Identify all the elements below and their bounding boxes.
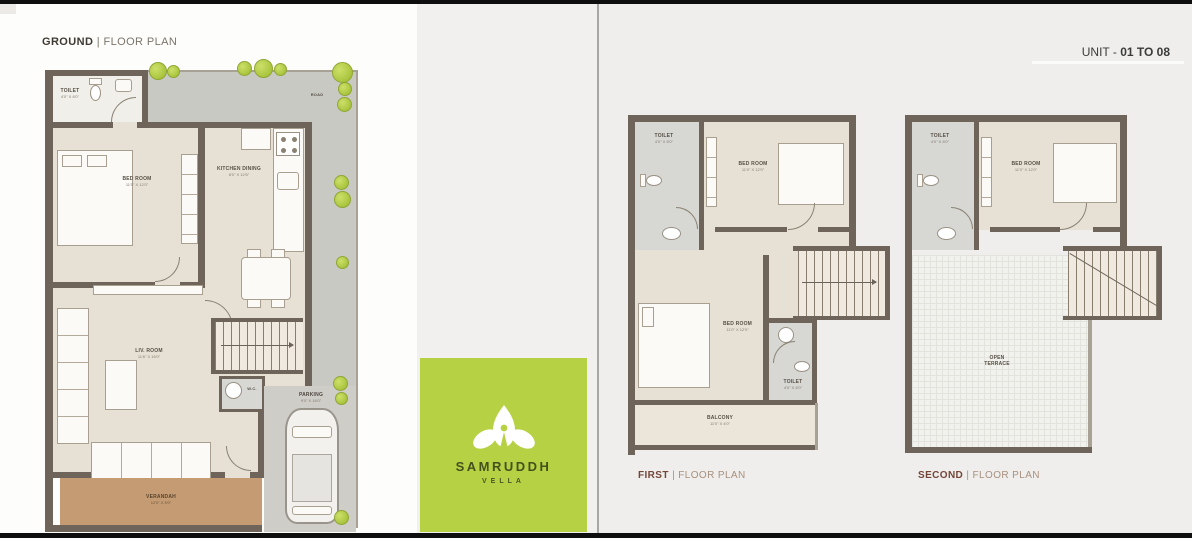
living-room-label-dim: 11'6" X 16'0": [117, 354, 181, 359]
wc-label: W.C.: [241, 386, 263, 391]
coffee-table: [105, 360, 137, 410]
bed: [778, 143, 844, 205]
dining-chair: [271, 299, 285, 308]
brand-box: SAMRUDDH VELLA: [420, 358, 587, 532]
second-plan-title-rest: | FLOOR PLAN: [966, 470, 1040, 481]
stove: [276, 132, 300, 156]
ground-plan-title-bold: GROUND: [42, 36, 93, 48]
stairs-arrow: [221, 345, 293, 346]
first-plan-title: FIRST | FLOOR PLAN: [638, 470, 746, 481]
stairs-arrow: [802, 282, 876, 283]
wall: [635, 445, 817, 450]
wall: [812, 320, 817, 405]
kitchen-sink: [277, 172, 299, 190]
pillow: [62, 155, 82, 167]
wall: [699, 122, 704, 250]
wall: [1120, 115, 1127, 255]
tree: [334, 510, 349, 525]
wall: [45, 70, 148, 76]
brand-name: SAMRUDDH: [456, 459, 552, 474]
sofa: [57, 308, 89, 444]
road-strip: [148, 70, 312, 128]
wall: [715, 227, 787, 232]
pillow: [642, 307, 654, 327]
wall: [53, 122, 113, 128]
wall: [912, 447, 1092, 453]
bedroom-label: BED ROOM 11'0" X 12'0": [724, 161, 782, 172]
ground-plan-title: GROUND | FLOOR PLAN: [42, 36, 177, 48]
wall: [53, 525, 262, 532]
tv-unit: [93, 285, 203, 295]
toilet-label: TOILET 4'0" X 6'0": [638, 133, 690, 144]
toilet-commode: [794, 361, 810, 372]
top-left-notch: [0, 4, 16, 14]
toilet-label-dim: 4'0" X 6'0": [774, 385, 812, 390]
wall: [818, 227, 856, 232]
toilet-commode: [90, 85, 101, 101]
terrace-label-line2: TERRACE: [965, 361, 1029, 367]
kitchen-label-dim: 8'0" X 12'6": [207, 172, 271, 177]
sofa: [91, 442, 211, 480]
tree: [167, 65, 180, 78]
car-windshield: [292, 426, 332, 438]
toilet-label: TOILET 4'0" X 6'0": [774, 379, 812, 390]
road-label-text: ROAD: [297, 92, 337, 97]
tree: [336, 256, 349, 269]
toilet-cistern: [89, 78, 102, 85]
parking-label: PARKING 9'0" X 16'0": [283, 392, 339, 403]
wall: [974, 122, 979, 250]
unit-label-range: 01 TO 08: [1120, 45, 1170, 59]
wardrobe: [981, 137, 992, 207]
plot-boundary-right: [356, 70, 358, 528]
road-label: ROAD: [297, 92, 337, 97]
toilet-label: TOILET 4'0" X 6'0": [53, 88, 87, 99]
tree: [334, 175, 349, 190]
bed: [1053, 143, 1117, 203]
unit-underline: [1032, 61, 1184, 64]
pillow: [87, 155, 107, 167]
brochure-page: GROUND | FLOOR PLAN UNIT - 01 TO 08 ROAD…: [0, 0, 1192, 538]
first-floor-plan: TOILET 4'0" X 6'0" BED ROOM 11'0" X 12'0…: [628, 115, 890, 455]
fridge: [241, 128, 271, 150]
tree: [254, 59, 273, 78]
bedroom-label-dim: 11'0" X 12'0": [105, 182, 169, 187]
wc-label-text: W.C.: [241, 386, 263, 391]
tree: [274, 63, 287, 76]
bottom-black-bar: [0, 533, 1192, 538]
wardrobe: [706, 137, 717, 207]
second-floor-plan: OPEN TERRACE TOILET 4'0" X 6'0" BED ROOM…: [905, 115, 1165, 460]
panel-divider: [597, 4, 599, 533]
wall: [305, 122, 312, 388]
tree: [334, 191, 351, 208]
wall: [45, 70, 53, 532]
bedroom-label: BED ROOM 11'0" X 12'0": [105, 176, 169, 187]
toilet-label-dim: 4'0" X 6'0": [914, 139, 966, 144]
bedroom-label: BED ROOM 11'0" X 12'0": [710, 321, 765, 332]
bedroom-label-dim: 11'0" X 12'0": [710, 327, 765, 332]
tree: [149, 62, 167, 80]
bedroom-label: BED ROOM 11'0" X 12'0": [997, 161, 1055, 172]
bedroom-label-dim: 11'0" X 12'0": [997, 167, 1055, 172]
dining-chair: [247, 299, 261, 308]
outside-patch: [817, 320, 856, 403]
open-terrace-floor: [912, 255, 1088, 451]
wall: [905, 115, 1127, 122]
toilet-label-dim: 4'0" X 6'0": [53, 94, 87, 99]
wall: [905, 115, 912, 453]
balcony-rail: [815, 403, 818, 450]
terrace-label: OPEN TERRACE: [965, 355, 1029, 368]
balcony-label-dim: 11'0" X 4'0": [690, 421, 750, 426]
bedroom-label-dim: 11'0" X 12'0": [724, 167, 782, 172]
kitchen-label: KITCHEN DINING 8'0" X 12'6": [207, 166, 271, 177]
second-plan-title-bold: SECOND: [918, 470, 963, 481]
car: [285, 408, 339, 524]
wall: [628, 115, 856, 122]
verandah-label-dim: 12'0" X 5'0": [131, 500, 191, 505]
tree: [333, 376, 348, 391]
top-black-bar: [0, 0, 1192, 4]
brand-tagline: VELLA: [482, 478, 525, 485]
tree: [335, 392, 348, 405]
wall: [142, 70, 148, 128]
first-plan-title-rest: | FLOOR PLAN: [672, 470, 746, 481]
wall: [1063, 316, 1162, 320]
wall: [885, 246, 890, 320]
ground-plan-title-rest: | FLOOR PLAN: [97, 36, 177, 48]
wc-basin: [225, 382, 242, 399]
ground-floor-plan: ROAD TOILET 4'0" X 6'0": [45, 70, 360, 532]
toilet-label: TOILET 4'0" X 6'0": [914, 133, 966, 144]
unit-label: UNIT - 01 TO 08: [1035, 45, 1170, 59]
wall: [198, 128, 205, 282]
tree: [337, 97, 352, 112]
first-plan-title-bold: FIRST: [638, 470, 669, 481]
wall: [849, 115, 856, 255]
wall: [990, 227, 1060, 232]
lotus-icon: [472, 405, 536, 453]
washbasin: [115, 79, 132, 92]
wall: [211, 370, 303, 374]
living-room-label: LIV. ROOM 11'6" X 16'0": [117, 348, 181, 359]
unit-label-prefix: UNIT -: [1082, 45, 1120, 59]
tree: [237, 61, 252, 76]
wall: [628, 115, 635, 455]
wall: [1157, 246, 1162, 320]
toilet-commode: [646, 175, 662, 186]
tree: [338, 82, 352, 96]
verandah-label: VERANDAH 12'0" X 5'0": [131, 494, 191, 505]
toilet-label-dim: 4'0" X 6'0": [638, 139, 690, 144]
second-plan-title: SECOND | FLOOR PLAN: [918, 470, 1040, 481]
wall: [1093, 227, 1127, 232]
car-rear-window: [292, 506, 332, 515]
balcony-label: BALCONY 11'0" X 4'0": [690, 415, 750, 426]
car-roof: [292, 454, 332, 502]
dining-table: [241, 257, 291, 300]
toilet-commode: [923, 175, 939, 186]
wardrobe: [181, 154, 198, 244]
parking-label-dim: 9'0" X 16'0": [283, 398, 339, 403]
tree: [332, 62, 353, 83]
